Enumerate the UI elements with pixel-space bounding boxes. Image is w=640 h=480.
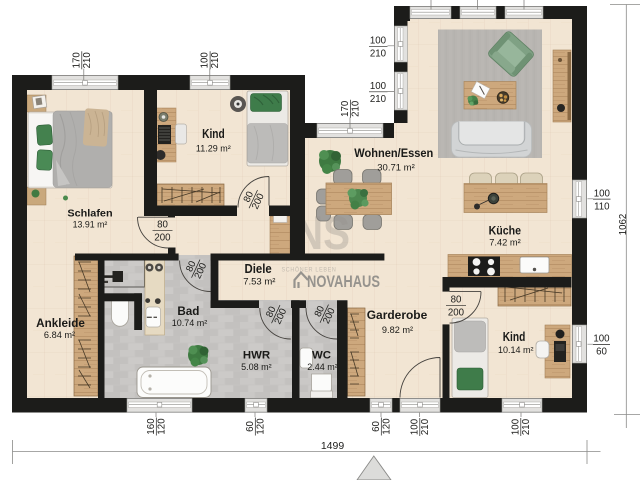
svg-text:120: 120 (381, 418, 392, 435)
svg-text:200: 200 (154, 233, 171, 244)
svg-text:210: 210 (370, 49, 387, 60)
svg-text:200: 200 (448, 308, 465, 319)
svg-text:170: 170 (71, 52, 82, 69)
svg-text:13.91 m²: 13.91 m² (73, 220, 108, 230)
svg-text:210: 210 (521, 418, 532, 435)
svg-text:10.74 m²: 10.74 m² (172, 318, 208, 328)
svg-text:1499: 1499 (321, 440, 345, 452)
svg-text:Wohnen/Essen: Wohnen/Essen (354, 146, 433, 160)
svg-text:120: 120 (255, 418, 266, 435)
svg-text:60: 60 (245, 421, 256, 432)
svg-text:160: 160 (146, 418, 157, 435)
svg-text:60: 60 (596, 347, 607, 358)
svg-text:Schlafen: Schlafen (67, 209, 112, 220)
svg-text:210: 210 (351, 100, 362, 117)
svg-text:7.42 m²: 7.42 m² (489, 238, 521, 248)
svg-text:11.29 m²: 11.29 m² (196, 143, 231, 153)
svg-text:Diele: Diele (245, 261, 272, 276)
svg-text:210: 210 (82, 52, 93, 69)
svg-text:100: 100 (370, 81, 387, 92)
svg-text:100: 100 (370, 36, 387, 47)
svg-text:210: 210 (210, 52, 221, 69)
svg-text:Kind: Kind (503, 329, 526, 344)
svg-text:210: 210 (370, 94, 387, 105)
svg-text:Küche: Küche (489, 224, 522, 238)
svg-text:2.44 m²: 2.44 m² (307, 362, 338, 372)
svg-text:120: 120 (156, 418, 167, 435)
svg-text:30.71 m²: 30.71 m² (377, 163, 415, 174)
svg-text:170: 170 (340, 100, 351, 117)
svg-text:7.53 m²: 7.53 m² (243, 277, 275, 288)
svg-text:100: 100 (510, 418, 521, 435)
svg-text:80: 80 (451, 295, 462, 306)
svg-text:10.14 m²: 10.14 m² (498, 345, 534, 355)
svg-text:Bad: Bad (177, 305, 199, 318)
svg-text:HWR: HWR (243, 349, 270, 361)
svg-text:6.84 m²: 6.84 m² (44, 330, 75, 340)
svg-text:210: 210 (420, 418, 431, 435)
svg-text:110: 110 (594, 201, 610, 212)
svg-text:60: 60 (371, 421, 382, 432)
svg-text:1062: 1062 (618, 214, 629, 236)
svg-text:100: 100 (409, 418, 420, 435)
svg-text:100: 100 (200, 52, 211, 69)
svg-text:NOVAHAUS: NOVAHAUS (307, 273, 380, 291)
svg-text:Ankleide: Ankleide (36, 316, 85, 330)
svg-text:100: 100 (594, 188, 611, 199)
svg-text:80: 80 (157, 220, 168, 231)
svg-text:5.08 m²: 5.08 m² (241, 362, 272, 372)
svg-text:Kind: Kind (202, 126, 225, 141)
svg-text:9.82 m²: 9.82 m² (382, 325, 413, 335)
svg-text:Garderobe: Garderobe (367, 308, 428, 322)
svg-text:100: 100 (593, 334, 610, 345)
svg-text:WC: WC (312, 349, 331, 361)
